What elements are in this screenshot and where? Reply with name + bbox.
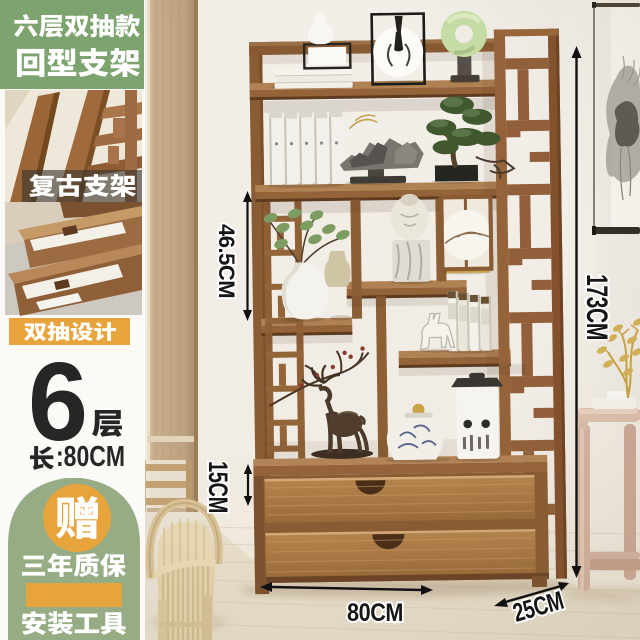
svg-text:46.5CM: 46.5CM	[214, 224, 239, 298]
svg-text::80CM: :80CM	[56, 441, 125, 473]
svg-text:80CM: 80CM	[347, 599, 403, 627]
svg-text:173CM: 173CM	[580, 274, 613, 340]
svg-text:15CM: 15CM	[203, 461, 233, 513]
